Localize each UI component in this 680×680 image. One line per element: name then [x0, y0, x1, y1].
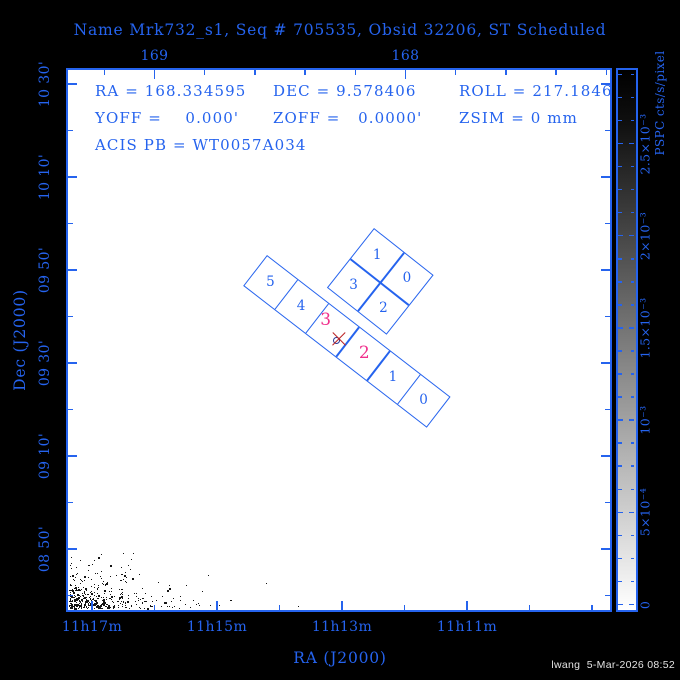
- source-pixel: [114, 605, 115, 606]
- source-pixel: [74, 580, 75, 581]
- source-pixel: [136, 593, 137, 594]
- info-zsim: ZSIM = 0 mm: [459, 109, 578, 127]
- cb-tick-label: 2.5×10⁻³: [638, 113, 653, 174]
- source-pixel: [84, 598, 85, 599]
- source-pixel: [84, 591, 85, 592]
- source-pixel: [110, 576, 111, 577]
- cb-tick: [631, 350, 635, 352]
- source-pixel: [89, 602, 90, 603]
- cb-tick: [618, 489, 622, 491]
- info-roll: ROLL = 217.1846: [459, 82, 613, 100]
- x-top-minor-tick: [204, 70, 206, 75]
- x-top-minor-tick: [304, 70, 306, 75]
- cb-tick: [618, 97, 622, 99]
- source-pixel: [111, 599, 112, 600]
- acis-s-chip-label: 4: [297, 298, 306, 314]
- cb-tick: [631, 120, 635, 122]
- source-pixel: [71, 585, 72, 586]
- source-pixel: [90, 596, 91, 597]
- source-pixel: [75, 604, 77, 606]
- source-pixel: [70, 603, 71, 604]
- source-pixel: [75, 596, 76, 597]
- source-pixel: [111, 588, 112, 589]
- colorbar: [616, 68, 638, 612]
- source-pixel: [88, 577, 89, 578]
- source-pixel: [81, 589, 82, 590]
- source-pixel: [101, 554, 102, 555]
- cb-tick: [631, 189, 635, 191]
- acis-s-divider: [397, 374, 421, 404]
- y-tick-label: 09 50': [37, 247, 53, 293]
- cb-tick: [618, 74, 622, 76]
- x-top-tick-label: 169: [141, 48, 169, 64]
- y-right-major-tick: [601, 83, 610, 85]
- cb-tick: [631, 442, 635, 444]
- source-pixel: [122, 589, 123, 590]
- source-pixel: [94, 595, 95, 596]
- source-pixel: [88, 605, 89, 606]
- source-pixel: [70, 599, 71, 600]
- source-pixel: [121, 593, 122, 594]
- source-pixel: [140, 599, 141, 600]
- source-pixel: [84, 580, 85, 581]
- source-pixel: [122, 604, 123, 605]
- source-pixel: [123, 553, 124, 554]
- cb-tick-label: 0: [638, 600, 653, 608]
- source-pixel: [106, 583, 108, 585]
- y-major-tick: [68, 176, 77, 178]
- info-acis-pb: ACIS PB = WT0057A034: [95, 136, 307, 154]
- source-pixel: [121, 580, 122, 581]
- y-right-minor-tick: [605, 409, 610, 411]
- source-pixel: [151, 596, 152, 597]
- source-pixel: [131, 559, 132, 560]
- source-pixel: [97, 573, 98, 574]
- cb-tick: [631, 581, 635, 583]
- source-pixel: [81, 608, 82, 609]
- y-tick-label: 09 10': [37, 433, 53, 479]
- source-pixel: [96, 604, 97, 605]
- x-minor-tick: [279, 605, 281, 610]
- y-minor-tick: [68, 223, 73, 225]
- acis-s-divider: [275, 280, 299, 310]
- source-pixel: [92, 564, 93, 565]
- x-tick-label: 11h15m: [187, 619, 247, 635]
- cb-tick: [631, 212, 635, 214]
- source-pixel: [72, 601, 73, 602]
- x-major-tick: [216, 601, 218, 610]
- source-pixel: [202, 591, 203, 592]
- source-pixel: [74, 595, 75, 596]
- source-pixel: [91, 593, 93, 595]
- source-pixel: [71, 557, 72, 558]
- source-pixel: [142, 603, 143, 604]
- source-pixel: [199, 605, 200, 606]
- source-pixel: [94, 608, 95, 609]
- acis-i-chip-label: 1: [373, 247, 382, 263]
- cb-tick: [629, 235, 634, 237]
- source-pixel: [114, 596, 115, 597]
- source-pixel: [136, 604, 137, 605]
- x-tick-label: 11h17m: [62, 619, 122, 635]
- source-pixel: [139, 574, 140, 575]
- cb-tick: [631, 489, 635, 491]
- source-pixel: [75, 599, 76, 600]
- source-pixel: [82, 601, 83, 602]
- source-pixel: [99, 607, 101, 609]
- cb-tick: [618, 350, 622, 352]
- cb-tick: [631, 258, 635, 260]
- source-pixel: [210, 605, 211, 606]
- source-pixel: [125, 605, 126, 606]
- source-pixel: [105, 603, 106, 604]
- source-pixel: [71, 568, 72, 569]
- source-pixel: [169, 585, 170, 586]
- x-top-tick-label: 168: [392, 48, 420, 64]
- source-pixel: [143, 598, 144, 599]
- x-major-tick: [341, 601, 343, 610]
- source-pixel: [112, 601, 113, 602]
- source-pixel: [80, 590, 81, 591]
- cb-tick: [618, 442, 622, 444]
- source-pixel: [180, 596, 181, 597]
- info-yoff: YOFF = 0.000': [95, 109, 239, 127]
- source-pixel: [198, 603, 199, 604]
- source-pixel: [135, 601, 136, 602]
- source-pixel: [75, 577, 76, 578]
- cb-tick: [631, 558, 635, 560]
- y-minor-tick: [68, 502, 73, 504]
- info-zoff: ZOFF = 0.0000': [273, 109, 422, 127]
- x-top-minor-tick: [606, 70, 608, 75]
- acis-s-chip-label: 5: [266, 274, 275, 290]
- source-pixel: [105, 585, 106, 586]
- source-pixel: [77, 600, 78, 601]
- source-pixel: [104, 593, 105, 594]
- cb-tick: [618, 258, 622, 260]
- y-right-major-tick: [601, 455, 610, 457]
- source-pixel: [111, 566, 112, 567]
- cb-tick: [618, 396, 622, 398]
- source-pixel: [74, 597, 75, 598]
- x-top-minor-tick: [555, 70, 557, 75]
- source-pixel: [77, 606, 78, 607]
- source-pixel: [104, 590, 106, 592]
- y-tick-label: 10 10': [37, 154, 53, 200]
- source-pixel: [173, 598, 174, 599]
- source-pixel: [93, 605, 94, 606]
- source-pixel: [83, 587, 84, 588]
- source-pixel: [129, 608, 130, 609]
- source-pixel: [103, 605, 104, 606]
- cb-tick: [631, 97, 635, 99]
- y-right-minor-tick: [605, 223, 610, 225]
- source-pixel: [136, 596, 137, 597]
- source-pixel: [79, 600, 80, 601]
- cb-tick: [618, 419, 623, 421]
- source-pixel: [77, 573, 78, 574]
- source-pixel: [104, 601, 105, 602]
- source-pixel: [126, 582, 127, 583]
- source-pixel: [84, 607, 85, 608]
- y-major-tick: [68, 455, 77, 457]
- cb-tick-label: 1.5×10⁻³: [638, 297, 653, 358]
- source-pixel: [158, 582, 159, 583]
- cb-tick: [631, 74, 635, 76]
- cb-tick: [631, 304, 635, 306]
- source-pixel: [73, 579, 74, 580]
- source-pixel: [186, 585, 187, 586]
- source-pixel: [145, 593, 146, 594]
- source-pixel: [298, 606, 299, 607]
- source-pixel: [109, 598, 110, 599]
- source-pixel: [103, 597, 104, 598]
- cb-tick: [618, 512, 623, 514]
- cb-tick: [629, 604, 634, 606]
- source-pixel: [69, 605, 70, 606]
- source-pixel: [146, 601, 147, 602]
- source-pixel: [190, 607, 191, 608]
- source-pixel: [164, 602, 166, 604]
- source-pixel: [93, 599, 94, 600]
- source-pixel: [166, 602, 167, 603]
- source-pixel: [128, 598, 129, 599]
- cb-tick: [631, 535, 635, 537]
- source-pixel: [85, 601, 87, 603]
- cb-tick: [629, 143, 634, 145]
- x-tick-label: 11h11m: [437, 619, 497, 635]
- cb-tick: [618, 212, 622, 214]
- source-pixel: [106, 606, 107, 607]
- x-top-major-tick: [154, 70, 156, 79]
- source-pixel: [174, 606, 175, 607]
- cb-tick: [618, 189, 622, 191]
- source-pixel: [167, 606, 168, 607]
- cb-tick: [618, 120, 622, 122]
- source-pixel: [97, 598, 98, 599]
- source-pixel: [116, 575, 117, 576]
- info-ra: RA = 168.334595: [95, 82, 246, 100]
- source-pixel: [76, 567, 77, 568]
- source-pixel: [91, 579, 92, 580]
- source-pixel: [70, 607, 72, 609]
- source-pixel: [179, 608, 180, 609]
- source-pixel: [71, 563, 72, 564]
- cb-tick-label: 10⁻³: [638, 406, 653, 435]
- y-minor-tick: [68, 409, 73, 411]
- source-pixel: [121, 601, 122, 602]
- source-pixel: [147, 608, 149, 610]
- source-pixel: [122, 598, 123, 599]
- source-pixel: [131, 606, 132, 607]
- cb-tick-label: 5×10⁻⁴: [638, 488, 653, 536]
- source-pixel: [90, 592, 91, 593]
- source-pixel: [266, 583, 267, 584]
- source-pixel: [70, 592, 71, 593]
- source-pixel: [75, 587, 77, 589]
- cb-tick: [631, 465, 635, 467]
- source-pixel: [75, 585, 76, 586]
- acis-i-chip-label: 3: [349, 277, 358, 293]
- source-pixel: [162, 596, 163, 597]
- source-pixel: [111, 596, 113, 598]
- source-pixel: [111, 591, 112, 592]
- source-pixel: [118, 601, 119, 602]
- cb-tick: [629, 327, 634, 329]
- source-pixel: [71, 601, 72, 602]
- source-pixel: [78, 608, 79, 609]
- cb-tick: [618, 558, 622, 560]
- y-major-tick: [68, 362, 77, 364]
- acis-i-chip-label: 2: [379, 300, 388, 316]
- y-right-major-tick: [601, 548, 610, 550]
- source-pixel: [80, 583, 81, 584]
- source-pixel: [122, 574, 123, 575]
- source-pixel: [142, 602, 143, 603]
- cb-tick: [618, 281, 622, 283]
- source-pixel: [133, 553, 134, 554]
- source-pixel: [156, 600, 157, 601]
- y-tick-label: 10 30': [37, 61, 53, 107]
- source-pixel: [113, 602, 114, 603]
- cb-tick-label: 2×10⁻³: [638, 212, 653, 260]
- x-top-minor-tick: [355, 70, 357, 75]
- source-pixel: [80, 579, 81, 580]
- source-pixel: [76, 608, 77, 609]
- acis-i-chip-label: 0: [403, 270, 412, 286]
- source-pixel: [94, 592, 95, 593]
- cb-tick: [618, 304, 622, 306]
- source-pixel: [152, 601, 153, 602]
- source-pixel: [74, 601, 75, 602]
- cb-tick: [631, 281, 635, 283]
- source-pixel: [106, 599, 107, 600]
- source-pixel: [86, 597, 87, 598]
- source-pixel: [98, 595, 100, 597]
- source-pixel: [98, 587, 99, 588]
- x-minor-tick: [529, 605, 531, 610]
- x-minor-tick: [154, 605, 156, 610]
- x-top-major-tick: [405, 70, 407, 79]
- source-pixel: [142, 588, 143, 589]
- cb-tick: [618, 327, 623, 329]
- source-pixel: [121, 596, 123, 598]
- source-pixel: [90, 598, 91, 599]
- source-pixel: [130, 569, 131, 570]
- source-pixel: [105, 584, 106, 585]
- source-pixel: [138, 600, 139, 601]
- source-pixel: [70, 576, 71, 577]
- source-pixel: [88, 594, 89, 595]
- source-pixel: [76, 590, 77, 591]
- y-right-minor-tick: [605, 502, 610, 504]
- source-pixel: [94, 587, 95, 588]
- acis-s-chip-label: 1: [389, 369, 398, 385]
- y-right-minor-tick: [605, 595, 610, 597]
- source-pixel: [110, 607, 111, 608]
- source-pixel: [78, 597, 80, 599]
- source-pixel: [75, 590, 76, 591]
- source-pixel: [103, 601, 104, 602]
- source-pixel: [128, 565, 129, 566]
- source-pixel: [121, 567, 122, 568]
- y-tick-label: 08 50': [37, 526, 53, 572]
- acis-s-divider: [336, 327, 360, 357]
- source-pixel: [83, 595, 84, 596]
- source-pixel: [88, 565, 89, 566]
- source-pixel: [94, 560, 95, 561]
- source-pixel: [144, 608, 145, 609]
- x-minor-tick: [404, 605, 406, 610]
- colorbar-title: PSPC cts/s/pixel: [653, 51, 667, 156]
- cb-tick: [618, 166, 622, 168]
- source-pixel: [80, 560, 81, 561]
- source-pixel: [169, 588, 171, 590]
- source-pixel: [88, 604, 89, 605]
- source-pixel: [98, 585, 99, 586]
- source-pixel: [230, 600, 231, 601]
- x-top-minor-tick: [505, 70, 507, 75]
- source-pixel: [103, 581, 104, 582]
- y-right-major-tick: [601, 269, 610, 271]
- source-pixel: [81, 607, 82, 608]
- source-pixel: [185, 604, 186, 605]
- source-pixel: [101, 571, 102, 572]
- source-pixel: [125, 607, 126, 608]
- source-pixel: [84, 576, 86, 578]
- y-minor-tick: [68, 595, 73, 597]
- source-pixel: [126, 577, 127, 578]
- source-pixel: [98, 598, 99, 599]
- source-pixel: [134, 593, 135, 594]
- y-major-tick: [68, 548, 77, 550]
- acis-s-chip-label-highlighted: 2: [359, 343, 370, 363]
- cb-tick: [631, 373, 635, 375]
- acis-s-divider: [367, 351, 391, 381]
- source-pixel: [101, 578, 102, 579]
- x-major-tick: [466, 601, 468, 610]
- starcheck-figure: Name Mrk732_s1, Seq # 705535, Obsid 3220…: [0, 0, 680, 680]
- source-pixel: [102, 608, 103, 609]
- source-pixel: [167, 590, 169, 592]
- y-right-major-tick: [601, 176, 610, 178]
- source-pixel: [114, 607, 115, 608]
- source-pixel: [109, 591, 110, 592]
- y-axis-title: Dec (J2000): [11, 289, 29, 391]
- info-dec: DEC = 9.578406: [273, 82, 417, 100]
- source-pixel: [81, 604, 82, 605]
- source-pixel: [97, 589, 98, 590]
- source-pixel: [123, 579, 124, 580]
- source-pixel: [171, 601, 172, 602]
- source-pixel: [100, 576, 101, 577]
- cb-tick: [618, 581, 622, 583]
- source-pixel: [125, 572, 126, 573]
- source-pixel: [74, 607, 75, 608]
- source-pixel: [77, 590, 78, 591]
- figure-title: Name Mrk732_s1, Seq # 705535, Obsid 3220…: [74, 21, 607, 39]
- source-pixel: [82, 581, 83, 582]
- cb-tick: [618, 465, 622, 467]
- source-pixel: [94, 584, 95, 585]
- cb-tick: [629, 419, 634, 421]
- acis-s-chip-label: 0: [419, 392, 428, 408]
- x-top-minor-tick: [254, 70, 256, 75]
- source-pixel: [72, 606, 73, 607]
- source-pixel: [86, 607, 87, 608]
- source-pixel: [169, 606, 170, 607]
- cb-tick: [618, 604, 623, 606]
